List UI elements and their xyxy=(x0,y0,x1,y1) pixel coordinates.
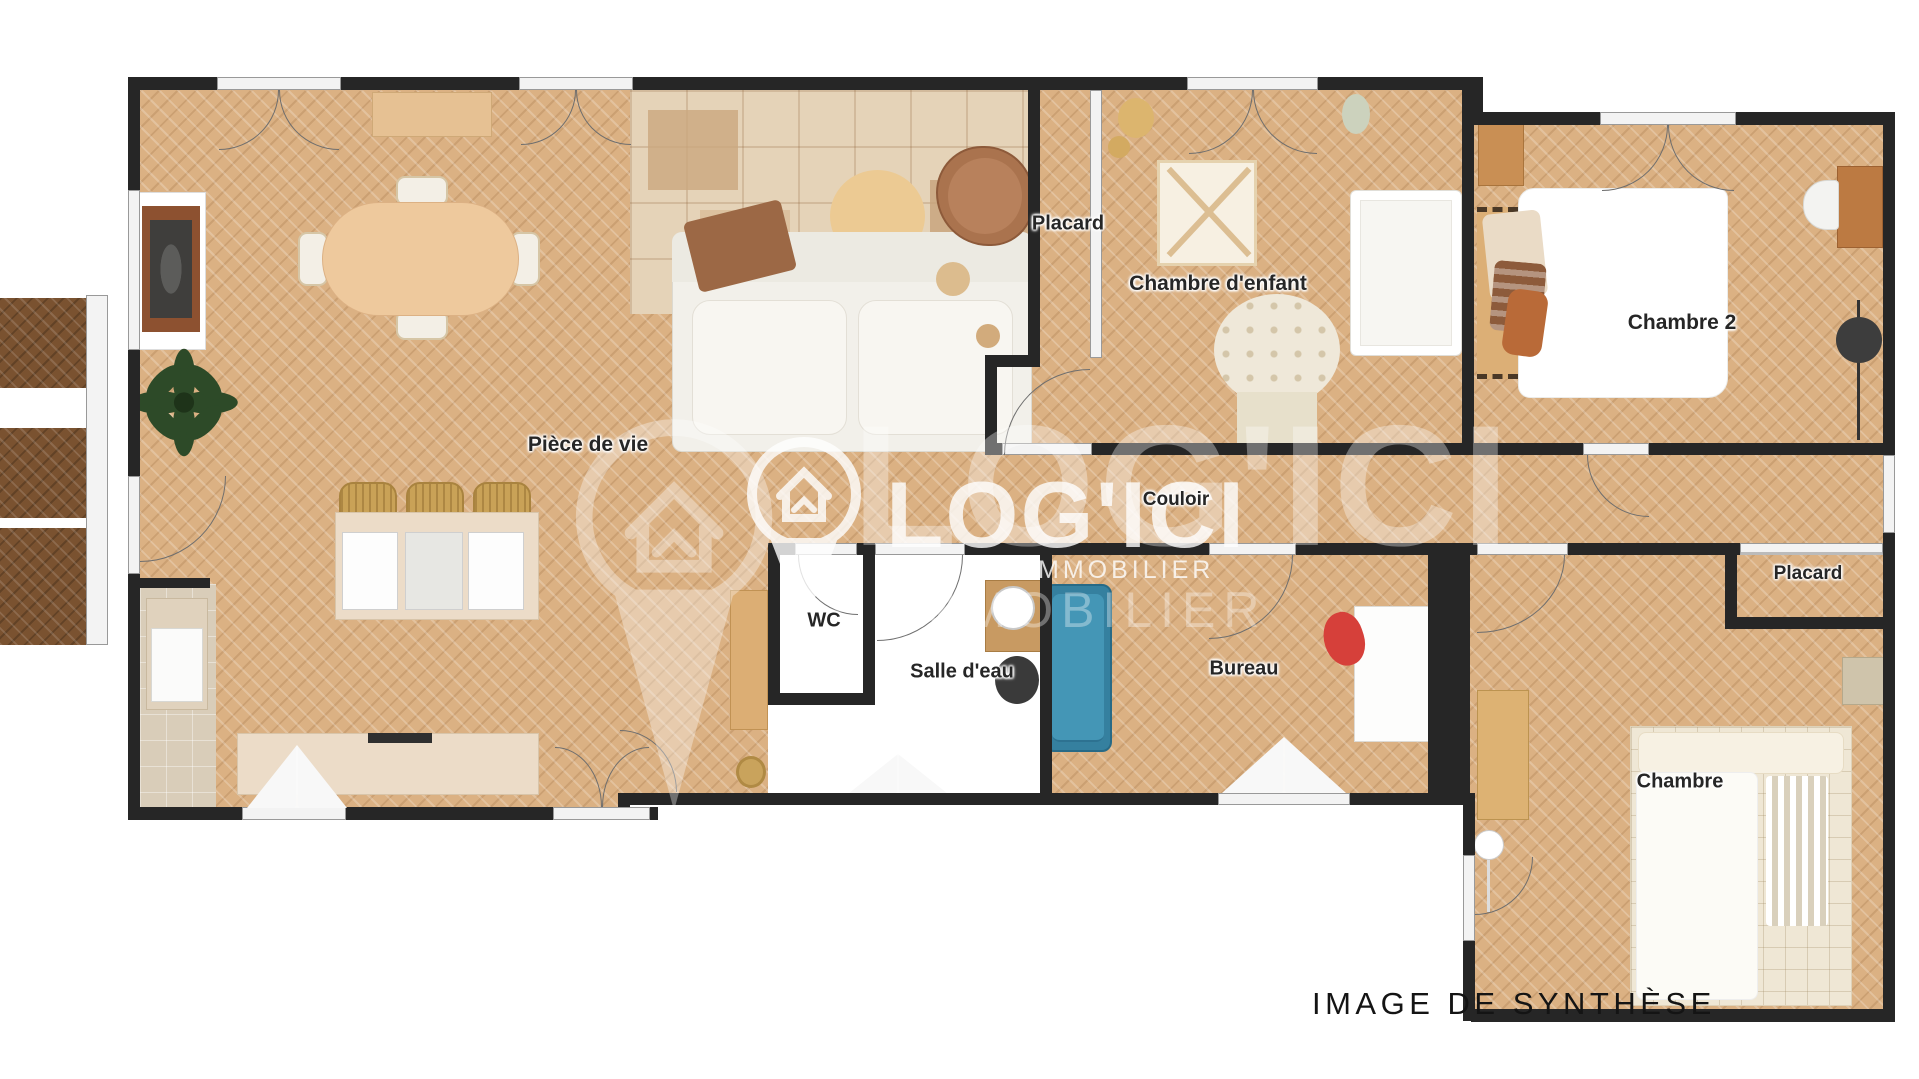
wall xyxy=(140,578,210,588)
balcony-floor-2 xyxy=(0,428,86,518)
pouf xyxy=(936,262,970,296)
teal-sofa-seat xyxy=(1052,594,1104,742)
room-label-closet-top: Placard xyxy=(1032,213,1104,236)
kitchen-appliance xyxy=(151,628,203,702)
sofa-cushion xyxy=(692,300,847,435)
pouf xyxy=(1108,136,1130,158)
desk xyxy=(1837,166,1883,248)
room-label-living: Pièce de vie xyxy=(528,433,648,457)
cooktop xyxy=(368,733,432,743)
balcony-floor-1 xyxy=(0,298,86,388)
room-label-wc: WC xyxy=(807,610,840,633)
sink xyxy=(991,586,1035,630)
bed-duvet xyxy=(1518,188,1728,398)
rug-patch xyxy=(648,110,738,190)
plant-icon xyxy=(128,345,240,460)
balcony-floor-3 xyxy=(0,528,86,645)
window xyxy=(519,77,633,90)
balcony-door xyxy=(128,476,140,574)
round-dot-rug xyxy=(1214,294,1340,406)
sideboard xyxy=(372,92,492,137)
crib-mattress xyxy=(1360,200,1452,346)
wall-duct xyxy=(1428,543,1470,793)
play-mat xyxy=(1237,392,1317,444)
striped-throw xyxy=(1766,776,1828,926)
room-label-child-bedroom: Chambre d'enfant xyxy=(1129,272,1307,296)
office-desk xyxy=(1354,606,1430,742)
bench-panel xyxy=(468,532,524,610)
balcony-rail xyxy=(86,295,108,645)
balcony-door xyxy=(1463,855,1475,941)
dining-table xyxy=(322,202,519,316)
door-opening xyxy=(1583,443,1649,455)
ladder-shelf xyxy=(730,590,768,730)
wall xyxy=(985,355,1040,367)
floor-plan: LOG'ICI IMMOBILIER LOG'ICI DU IMMOBILIER… xyxy=(0,0,1919,1079)
door-opening xyxy=(1209,543,1296,555)
wall xyxy=(128,77,140,820)
exterior-top-right xyxy=(1483,90,1883,112)
bench-panel xyxy=(405,532,463,610)
french-door xyxy=(1218,793,1350,805)
bench-panel xyxy=(342,532,398,610)
pouf xyxy=(976,324,1000,348)
window xyxy=(217,77,341,90)
door-opening xyxy=(875,543,965,555)
tv-screen xyxy=(150,220,192,318)
play-gym xyxy=(1157,160,1257,266)
armchair-cushion xyxy=(948,158,1022,234)
jute-rug xyxy=(736,756,766,788)
room-label-hallway: Couloir xyxy=(1143,489,1210,511)
wall xyxy=(1883,112,1895,1022)
shelf xyxy=(1478,124,1524,186)
pouf xyxy=(1118,98,1154,138)
wall xyxy=(863,555,875,705)
nightstand xyxy=(1842,657,1884,705)
room-label-closet-right: Placard xyxy=(1774,563,1843,585)
floor-lamp-shade xyxy=(1836,317,1882,363)
bed-duvet xyxy=(1636,772,1758,1000)
dresser xyxy=(1477,690,1529,820)
window xyxy=(1600,112,1736,125)
bay-window xyxy=(128,190,140,350)
white-floor-lamp-shade xyxy=(1474,830,1504,860)
room-label-bedroom2: Chambre 2 xyxy=(1628,311,1737,335)
wall xyxy=(768,543,780,705)
wall xyxy=(1725,617,1895,629)
window xyxy=(1883,455,1895,533)
wall-corridor-top xyxy=(985,443,1895,455)
sliding-door xyxy=(1740,543,1883,555)
room-label-office: Bureau xyxy=(1210,658,1279,681)
door-opening xyxy=(1477,543,1568,555)
double-door xyxy=(553,807,650,820)
pouf xyxy=(1342,94,1370,134)
room-label-bedroom: Chambre xyxy=(1637,771,1724,794)
door-opening xyxy=(795,543,857,555)
wall xyxy=(768,693,875,705)
wall xyxy=(985,367,997,455)
wall xyxy=(1462,77,1474,455)
pillow-row xyxy=(1638,732,1844,774)
french-door xyxy=(242,807,346,820)
image-caption: IMAGE DE SYNTHÈSE xyxy=(1312,986,1716,1022)
window xyxy=(1187,77,1318,90)
wall xyxy=(1040,543,1052,795)
room-label-shower-room: Salle d'eau xyxy=(910,661,1014,684)
